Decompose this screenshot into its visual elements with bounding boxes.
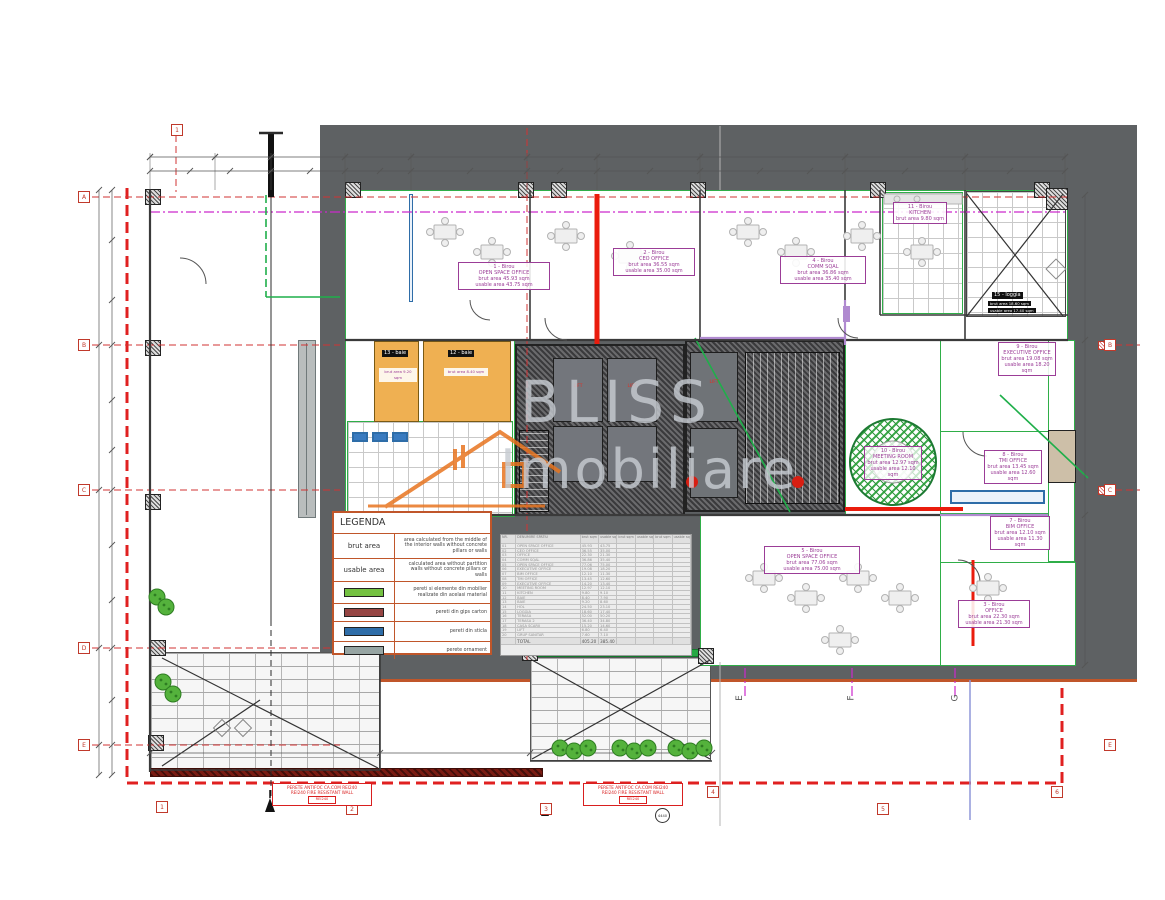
shaft-panel-2 (690, 428, 738, 498)
shaft-hatch (1048, 430, 1076, 483)
legend-term-brut: brut area (334, 534, 395, 558)
legend-row-gray: perete ornament (334, 642, 490, 659)
room-1-label: 1 - Birou OPEN SPACE OFFICE brut area 45… (458, 262, 550, 290)
schedule-cell: usable sqm (599, 535, 617, 544)
glass-partition-vert (409, 194, 413, 302)
structural-column (1046, 188, 1068, 210)
grid-left-b: B (78, 339, 90, 351)
wc-13-label: 13 - baie (382, 350, 408, 357)
elevator-cab-2 (607, 358, 657, 422)
blue-swatch (344, 627, 384, 636)
structural-column (870, 182, 886, 198)
legend-desc-usable: calculated area without partition walls … (395, 561, 490, 580)
green-swatch (344, 588, 384, 597)
room-5-open-space (700, 514, 941, 666)
structural-column (145, 494, 161, 510)
structural-column (518, 182, 534, 198)
room-2-label: 2 - Birou CEO OFFICE brut area 36.55 sqm… (613, 248, 695, 276)
side-room (1048, 482, 1075, 562)
grid-bottom-4: 4 (707, 786, 719, 798)
grid-bottom-1: 1 (156, 801, 168, 813)
legend-swatch-cell-blue (334, 622, 395, 641)
legend-desc-green: pereti si elemente din mobilier realizat… (395, 586, 490, 599)
legend-term-usable: usable area (334, 559, 395, 581)
schedule-cell (617, 638, 635, 645)
shower-unit-2 (372, 432, 388, 442)
room-2-usable: usable area 35.00 sqm (615, 268, 693, 274)
schedule-cell: 405.20 (581, 638, 599, 645)
stair-flight-main (745, 352, 840, 504)
terrace-center (530, 657, 711, 761)
legend-title: LEGENDA (334, 513, 490, 534)
meeting-room-label: 10 - Birou MEETING ROOM brut area 12.97 … (864, 446, 922, 480)
legend-row-red: pereti din gips carton (334, 604, 490, 622)
structural-column (690, 182, 706, 198)
meeting-block (845, 340, 941, 515)
grid-left-c: C (78, 484, 90, 496)
structural-column (145, 340, 161, 356)
lift-label-3: LIFT (695, 380, 733, 385)
structural-column (551, 182, 567, 198)
section-circle-marker: 4440 (655, 808, 670, 823)
grid-rot-g: G (950, 695, 960, 702)
schedule-cell: brut sqm (654, 535, 672, 544)
bush-plant (149, 589, 165, 605)
schedule-cell: usable sqm (673, 535, 691, 544)
grid-bottom-3: 3 (540, 803, 552, 815)
elevator-cab-1 (553, 358, 603, 422)
elevator-cab-4 (607, 426, 657, 482)
fire-wall-text-1b: REI240 FIRE RESISTANT WALL (275, 790, 369, 795)
room-5-usable: usable area 75.00 sqm (766, 566, 858, 572)
legend-row-usable: usable area calculated area without part… (334, 559, 490, 582)
structural-column (698, 648, 714, 664)
legend-desc-blue: pereti din sticla (395, 628, 490, 636)
elevator-cab-3 (553, 426, 603, 482)
legend-row-brut: brut area area calculated from the middl… (334, 534, 490, 559)
grid-bottom-6: 6 (1051, 786, 1063, 798)
kitchen-brut: brut area 9.80 sqm (895, 216, 945, 222)
shower-unit-3 (392, 432, 408, 442)
room-7-usable: usable area 11.30 sqm (992, 536, 1048, 548)
room-3-label: 3 - Birou OFFICE brut area 22.30 sqm usa… (958, 600, 1030, 628)
legend-desc-red: pereti din gips carton (395, 609, 490, 617)
room-8-label: 8 - Birou TMI OFFICE brut area 13.45 sqm… (984, 450, 1042, 484)
grid-left-d: D (78, 642, 90, 654)
structural-column (145, 189, 161, 205)
room-1-usable: usable area 43.75 sqm (460, 282, 548, 288)
bush-plant (158, 599, 174, 615)
fire-wall-text-2b: REI240 FIRE RESISTANT WALL (586, 790, 680, 795)
fire-wall-tag-1: REI240 (308, 796, 336, 803)
legend-desc-gray: perete ornament (395, 647, 490, 655)
legend-swatch-cell-gray (334, 642, 395, 659)
schedule-cell: brut sqm (617, 535, 635, 544)
legend-desc-brut: area calculated from the middle of the i… (395, 537, 490, 556)
structural-column (150, 640, 166, 656)
grid-right-c: C (1104, 484, 1116, 496)
lift-label-2: LIFT (612, 384, 652, 389)
schedule-cell: TOTAL (516, 638, 580, 645)
room-5-label: 5 - Birou OPEN SPACE OFFICE brut area 77… (764, 546, 860, 574)
meeting-usable: usable area 12.10 sqm (866, 466, 920, 478)
schedule-total-row: TOTAL405.20385.40 (501, 638, 691, 645)
fire-wall-tag-2: REI240 (619, 796, 647, 803)
schedule-cell (501, 638, 516, 645)
floor-plan-sheet: LIFT LIFT LIFT ✳ (0, 0, 1165, 900)
grid-right-b: B (1104, 339, 1116, 351)
gray-swatch (344, 646, 384, 655)
shaft-panel-1 (690, 352, 738, 422)
legend-swatch-cell-green (334, 582, 395, 603)
schedule-cell (636, 638, 654, 645)
grid-left-e: E (78, 739, 90, 751)
schedule-cell (673, 638, 691, 645)
schedule-cell: usable sqm (636, 535, 654, 544)
legend-row-blue: pereti din sticla (334, 622, 490, 642)
schedule-cell: DENUMIRE SPATIU (516, 535, 580, 544)
schedule-cell (654, 638, 672, 645)
legend-row-green: pereti si elemente din mobilier realizat… (334, 582, 490, 604)
fire-wall-label-1: PERETE ANTIFOC CA.COM REI240 REI240 FIRE… (272, 783, 372, 806)
grid-rot-f: F (847, 695, 857, 700)
loggia-label: 15 - loggia (992, 292, 1023, 299)
structural-column (345, 182, 361, 198)
grid-left-a: A (78, 191, 90, 203)
fire-wall (150, 768, 543, 777)
wc-12-label: 12 - baie (448, 350, 474, 357)
grid-right-e: E (1104, 739, 1116, 751)
stair-flight-small (519, 430, 549, 512)
ornament-wall (298, 340, 316, 518)
fire-wall-label-2: PERETE ANTIFOC CA.COM REI240 REI240 FIRE… (583, 783, 683, 806)
room-8-usable: usable area 12.60 sqm (986, 470, 1040, 482)
shower-unit-1 (352, 432, 368, 442)
grid-top-1: 1 (171, 124, 183, 136)
red-swatch (344, 608, 384, 617)
wc-13-area: brut area 9.20 sqm (379, 368, 417, 382)
room-7-label: 7 - Birou BIM OFFICE brut area 12.10 sqm… (990, 516, 1050, 550)
legend-swatch-cell-red (334, 604, 395, 621)
wc-12-area: brut area 8.40 sqm (444, 368, 488, 376)
grid-bottom-5: 5 (877, 803, 889, 815)
kitchen-label: 11 - Birou KITCHEN brut area 9.80 sqm (893, 202, 947, 224)
room-9-usable: usable area 18.20 sqm (1000, 362, 1054, 374)
room-9-label: 9 - Birou EXECUTIVE OFFICE brut area 19.… (998, 342, 1056, 376)
area-schedule-table: NR.DENUMIRE SPATIUbrut sqmusable sqmbrut… (500, 534, 692, 656)
loggia-brut: brut area 18.60 sqm (988, 301, 1031, 306)
lift-label-1: LIFT (558, 384, 598, 389)
loggia-usable: usable area 17.40 sqm (988, 308, 1036, 313)
terrace-left (150, 652, 380, 769)
glass-partition-band (950, 490, 1045, 504)
schedule-cell: 385.40 (599, 638, 617, 645)
schedule-cell: brut sqm (581, 535, 599, 544)
room-4-usable: usable area 35.40 sqm (782, 276, 864, 282)
grid-rot-e: E (735, 695, 745, 701)
room-4-label: 4 - Birou COMM SQAL brut area 36.86 sqm … (780, 256, 866, 284)
legend-box: LEGENDA brut area area calculated from t… (332, 511, 492, 655)
room-3-usable: usable area 21.30 sqm (960, 620, 1028, 626)
schedule-cell: NR. (501, 535, 516, 544)
structural-column (148, 735, 164, 751)
schedule-header-row: NR.DENUMIRE SPATIUbrut sqmusable sqmbrut… (501, 535, 691, 544)
